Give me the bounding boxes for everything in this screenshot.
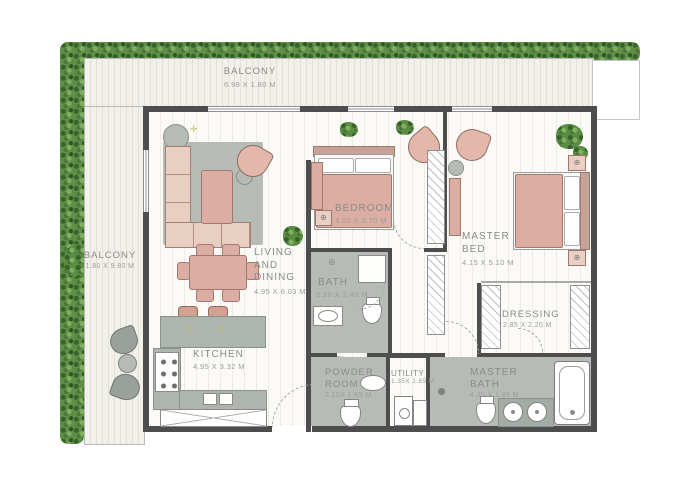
- master-side-table: [448, 160, 464, 176]
- utility-washer: [394, 396, 413, 426]
- label-kitchen: KITCHEN: [193, 349, 244, 362]
- master-nightstand: ⊕: [568, 155, 586, 171]
- dims-balcony-left: 1.80 X 9.80 M: [72, 263, 148, 270]
- bedroom-dresser: [311, 162, 323, 210]
- label-balcony-left: BALCONY: [75, 250, 145, 263]
- master-nightstand: ⊕: [568, 250, 586, 266]
- sparkle-icon: ✛: [190, 125, 198, 134]
- coffee-table: [201, 170, 233, 224]
- ceiling-light-icon: ⊕: [320, 214, 327, 222]
- dims-kitchen: 4.95 X 3.32 M: [193, 362, 245, 371]
- master-headboard: [580, 172, 590, 250]
- label-master-bath: MASTER BATH: [470, 367, 524, 391]
- dims-balcony-top: 6.98 X 1.80 M: [200, 80, 300, 89]
- label-bedroom: BEDROOM: [335, 203, 394, 216]
- label-balcony-top: BALCONY: [200, 66, 300, 79]
- bedroom-nightstand: ⊕: [315, 210, 332, 226]
- dims-master-bath: 4.35 X 1.85 M: [470, 392, 519, 399]
- bedroom-planter: [396, 120, 414, 135]
- cooktop: [155, 352, 179, 392]
- living-plant: [283, 226, 303, 246]
- label-powder-room: POWDER ROOM: [325, 367, 380, 390]
- dims-bath: 2.20 X 2.40 M: [316, 290, 368, 299]
- bath-shower: [358, 255, 386, 283]
- island-light-icon: ✛: [186, 326, 194, 335]
- label-living-dining: LIVING AND DINING: [254, 247, 304, 285]
- label-dressing: DRESSING: [502, 309, 560, 322]
- label-bath: BATH: [318, 277, 348, 290]
- dims-utility: 1.35X 1.85 M: [391, 378, 434, 385]
- ceiling-light-icon: ⊕: [574, 159, 581, 167]
- kitchen-cabinet: [160, 409, 267, 427]
- wall-bath-right: [388, 250, 392, 355]
- kitchen-island: [160, 316, 266, 348]
- master-console: [449, 178, 461, 236]
- floor-plan: ✛ ✛ ✛ ⊕ ⊕ ⊕ ⊕: [0, 0, 685, 478]
- ceiling-light-icon: ⊕: [574, 254, 581, 262]
- master-sink: [527, 402, 547, 422]
- bedroom-wardrobe: [427, 150, 445, 244]
- sink-basin: [203, 393, 217, 405]
- master-pillow: [564, 176, 580, 210]
- dining-chair: [222, 289, 240, 302]
- dining-chair: [196, 289, 214, 302]
- dims-master-bed: 4.15 X 5.10 M: [462, 258, 514, 267]
- sofa-vertical: [165, 146, 191, 228]
- terrace-corner-outline: [592, 60, 640, 120]
- dressing-top-line: [481, 281, 591, 283]
- bedroom-pillow: [355, 158, 391, 173]
- master-blanket: [515, 174, 563, 248]
- balcony-top-floor: [84, 58, 594, 108]
- utility-cabinet: [413, 400, 427, 426]
- floor-drain: [438, 388, 445, 395]
- bedroom-wardrobe: [427, 255, 445, 335]
- master-pillow: [564, 212, 580, 246]
- ceiling-light-icon: ⊕: [328, 258, 336, 267]
- hedge-left: [60, 42, 84, 444]
- balcony-table: [118, 354, 137, 373]
- dims-dressing: 2.85 X 2.20 M: [503, 322, 552, 329]
- wall-powder-utility: [386, 353, 390, 432]
- wall-bottom-right-seg: [312, 426, 597, 432]
- balcony-slider-window: [208, 106, 300, 112]
- master-bathtub: [554, 361, 590, 425]
- dressing-wardrobe: [570, 285, 590, 349]
- bedroom-pillow: [318, 158, 354, 173]
- dims-powder-room: 2.10X 1.85 M: [325, 392, 371, 399]
- island-light-icon: ✛: [216, 326, 224, 335]
- wall-right: [591, 106, 597, 432]
- dressing-wardrobe: [481, 285, 501, 349]
- master-window: [452, 106, 492, 112]
- wall-bedroom-bath-stub: [424, 248, 447, 252]
- dims-bedroom: 4.00 X 3.70 M: [335, 216, 387, 225]
- dining-table: [189, 255, 247, 290]
- sink-basin: [219, 393, 233, 405]
- bedroom-planter: [340, 122, 358, 137]
- living-balcony-slider: [143, 150, 149, 212]
- bedroom-window: [348, 106, 394, 112]
- label-master-bed: MASTER BED: [462, 231, 516, 256]
- bath-sink: [318, 310, 338, 322]
- master-sink: [503, 402, 523, 422]
- dims-living-dining: 4.95 X 6.03 M: [254, 287, 306, 296]
